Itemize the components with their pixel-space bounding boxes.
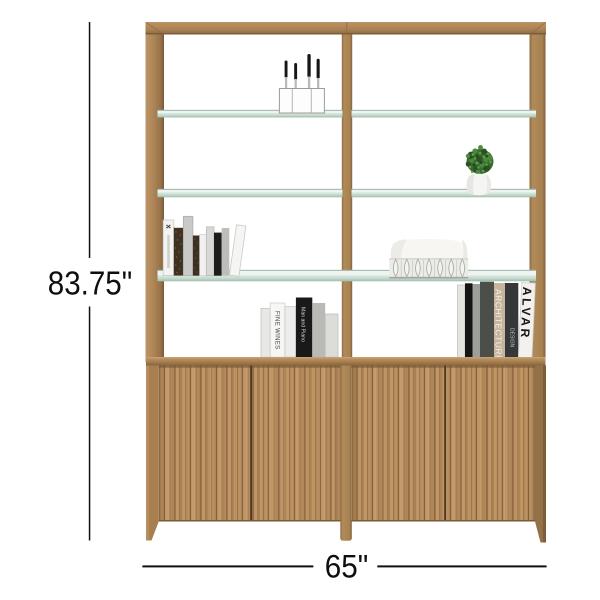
svg-text:65": 65" [325, 549, 369, 585]
svg-text:Man and Piano: Man and Piano [300, 307, 306, 342]
svg-text:ALVAR: ALVAR [518, 286, 534, 340]
svg-text:DESIGN: DESIGN [509, 328, 515, 348]
svg-text:83.75": 83.75" [48, 265, 133, 302]
svg-text:FINE WINES: FINE WINES [274, 311, 280, 350]
svg-text:ARCHITECTURE: ARCHITECTURE [494, 289, 504, 361]
